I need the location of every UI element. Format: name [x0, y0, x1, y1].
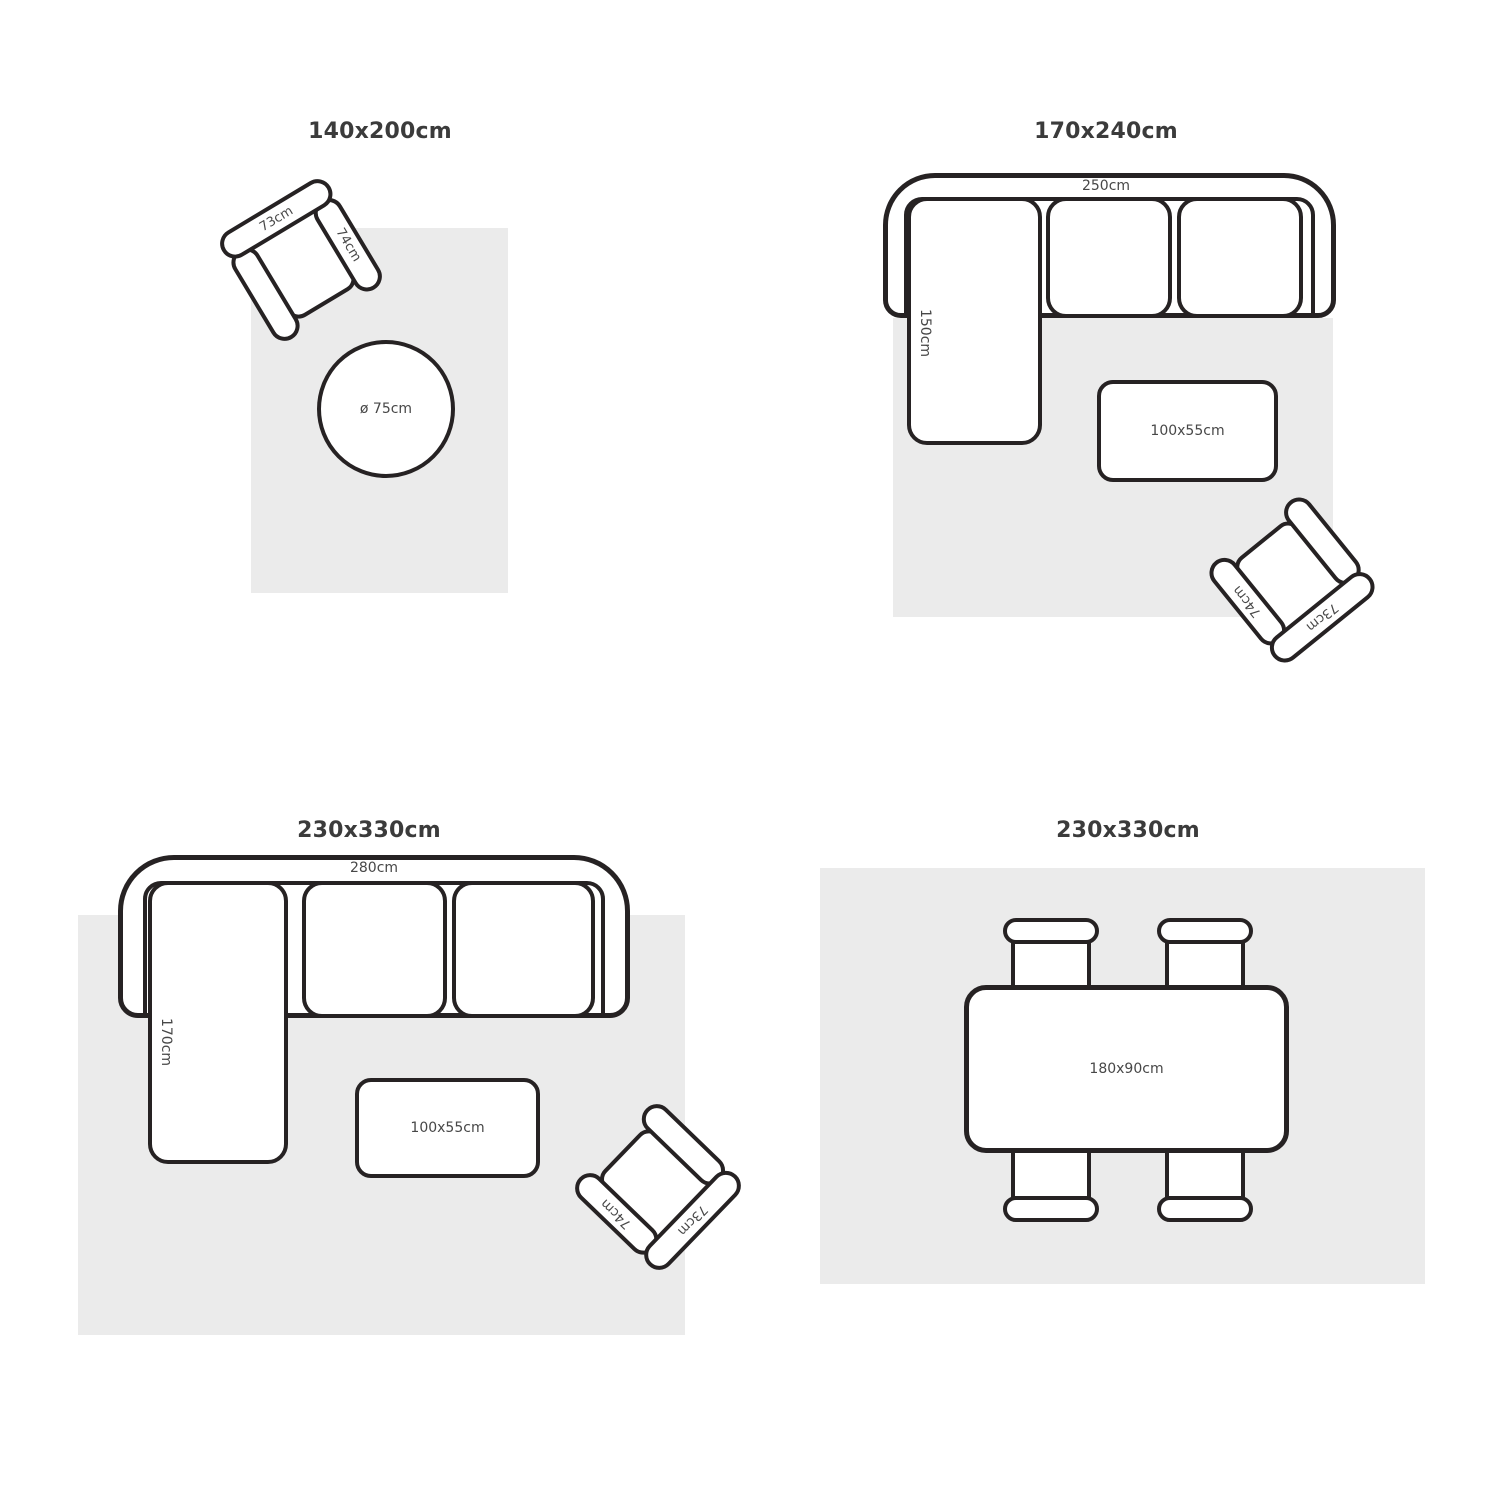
sofa-middle-cushion — [302, 881, 447, 1018]
panel-title-170x240: 170x240cm — [956, 119, 1256, 144]
panel-title-230x330-sofa: 230x330cm — [219, 818, 519, 843]
sofa-width-dimension: 280cm — [274, 860, 474, 876]
dining-table-dimension: 180x90cm — [1089, 1061, 1163, 1077]
panel-title-230x330-dining: 230x330cm — [978, 818, 1278, 843]
dining-table: 180x90cm — [964, 985, 1289, 1153]
sofa-right-cushion — [1177, 197, 1303, 318]
coffee-table-dimension: 100x55cm — [1150, 423, 1224, 439]
coffee-table: 100x55cm — [1097, 380, 1278, 482]
sofa-middle-cushion — [1046, 197, 1172, 318]
coffee-table: 100x55cm — [355, 1078, 540, 1178]
dining-chair-seat — [1011, 1148, 1091, 1200]
sofa-depth-dimension: 150cm — [917, 303, 933, 363]
rug-size-guide-diagram: 140x200cm 74cm 73cm ø 75cm 170x240cm 250… — [0, 0, 1500, 1500]
round-table-dimension: ø 75cm — [360, 401, 412, 417]
dining-chair-backrest — [1157, 1196, 1253, 1222]
round-side-table: ø 75cm — [317, 340, 455, 478]
dining-chair-seat — [1165, 1148, 1245, 1200]
panel-title-140x200: 140x200cm — [230, 119, 530, 144]
sofa-width-dimension: 250cm — [1006, 178, 1206, 194]
dining-chair-backrest — [1003, 1196, 1099, 1222]
sofa-depth-dimension: 170cm — [158, 1012, 174, 1072]
sofa-right-cushion — [452, 881, 595, 1018]
coffee-table-dimension: 100x55cm — [410, 1120, 484, 1136]
